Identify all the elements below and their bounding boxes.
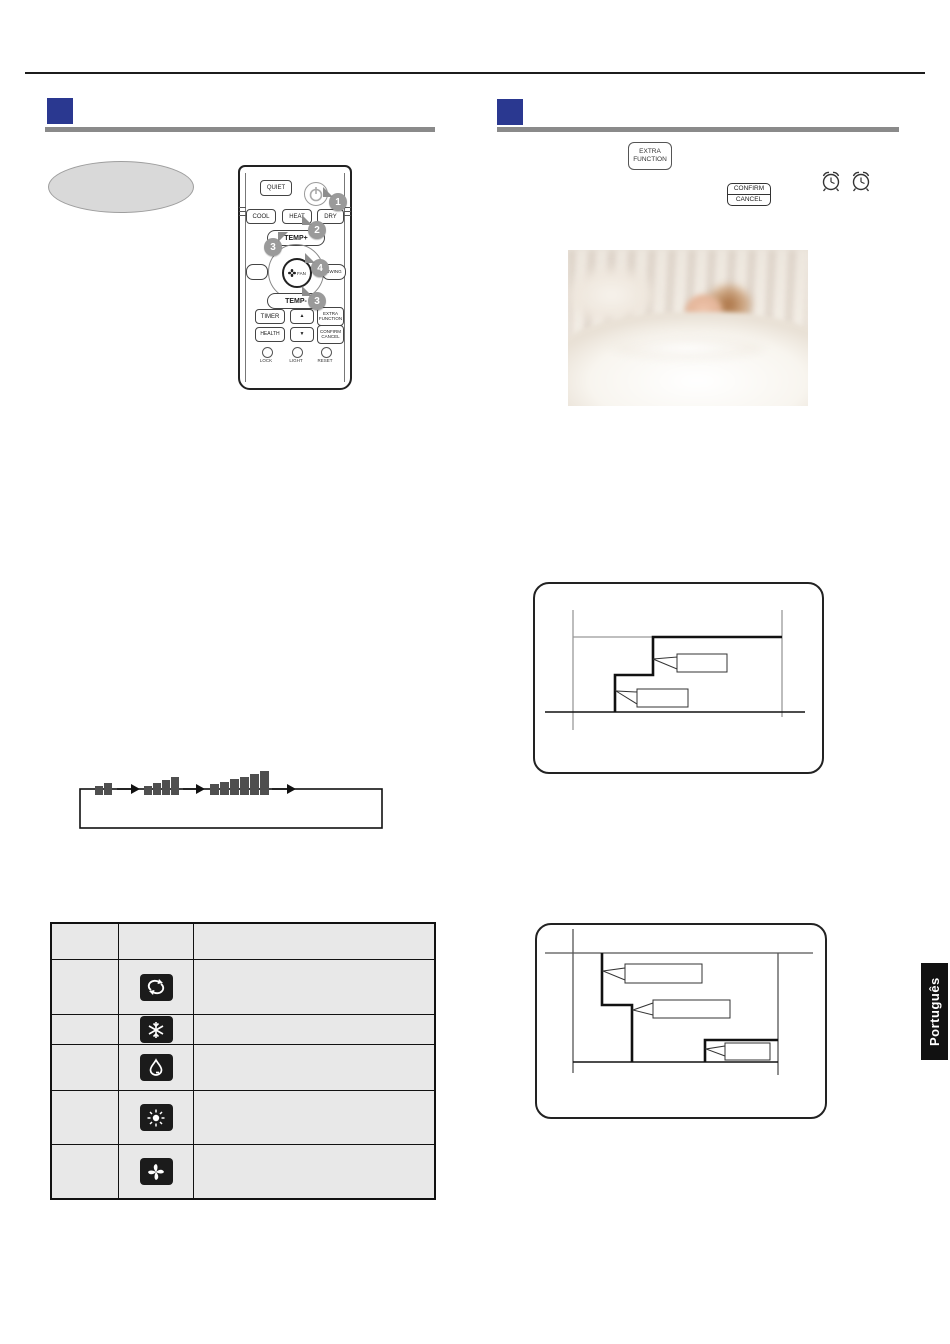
mode-desc-cell xyxy=(194,1015,434,1044)
mode-desc-cell xyxy=(194,1045,434,1090)
step-badge-3a: 3 xyxy=(264,238,282,256)
alarm-clock-icon xyxy=(820,169,842,193)
fan-icon xyxy=(140,1158,173,1185)
water-drop-icon xyxy=(140,1054,173,1081)
reset-label: RESET xyxy=(313,359,337,364)
sleeping-person-photo xyxy=(568,250,808,406)
mode-name-cell xyxy=(52,960,119,1014)
extra-function-button: EXTRA FUNCTION xyxy=(317,307,344,326)
confirm-cancel-inline-button: CONFIRM CANCEL xyxy=(727,183,771,206)
mode-name-cell xyxy=(52,1145,119,1198)
blank-oval-callout xyxy=(48,161,194,213)
reset-button xyxy=(321,347,332,358)
mode-name-cell xyxy=(52,1045,119,1090)
light-label: LIGHT xyxy=(284,359,308,364)
mode-icon-cell xyxy=(119,1145,194,1198)
cool-button: COOL xyxy=(246,209,276,224)
light-button xyxy=(292,347,303,358)
mode-icon-cell xyxy=(119,1045,194,1090)
step-badge-4: 4 xyxy=(311,259,329,277)
language-tab-portugues: Português xyxy=(921,963,948,1060)
step-badge-2: 2 xyxy=(308,221,326,239)
mode-desc-cell xyxy=(194,1145,434,1198)
header-cell xyxy=(194,924,434,959)
remote-ridges-right xyxy=(344,207,351,218)
section-rule-right xyxy=(497,127,899,132)
callout-box xyxy=(616,689,688,707)
callout-box xyxy=(706,1043,770,1060)
auto-icon xyxy=(140,974,173,1001)
cancel-inline-line: CANCEL xyxy=(728,195,770,205)
quiet-button: QUIET xyxy=(260,180,292,196)
extra-inline-line1: EXTRA xyxy=(639,148,661,156)
extra-function-line2: FUNCTION xyxy=(319,317,342,322)
section-marker-left xyxy=(47,98,73,124)
up-arrow-button: ▲ xyxy=(290,309,314,324)
extra-inline-line2: FUNCTION xyxy=(633,156,667,164)
mode-icon-cell xyxy=(119,1091,194,1144)
fan-speed-cycle-diagram xyxy=(60,760,400,835)
mode-table xyxy=(50,922,436,1200)
sleep-curve-heat-graph xyxy=(537,925,821,1113)
page-top-rule xyxy=(25,72,925,74)
fan-speed-medium-icon xyxy=(144,777,179,795)
table-row xyxy=(52,960,434,1015)
mode-desc-cell xyxy=(194,960,434,1014)
header-cell xyxy=(52,924,119,959)
table-row xyxy=(52,1045,434,1091)
sleep-curve-cool-graph xyxy=(535,584,818,768)
mode-icon-cell xyxy=(119,960,194,1014)
table-header-row xyxy=(52,924,434,960)
remote-ridges-left xyxy=(239,207,246,218)
step-badge-3b: 3 xyxy=(308,292,326,310)
section-marker-right xyxy=(497,99,523,125)
sleep-curve-diagram-heat xyxy=(535,923,827,1119)
fan-glyph-icon xyxy=(288,269,296,277)
mode-name-cell xyxy=(52,1015,119,1044)
confirm-inline-line: CONFIRM xyxy=(728,184,770,195)
cycle-arrow-icon xyxy=(183,784,205,794)
mode-name-cell xyxy=(52,1091,119,1144)
table-row xyxy=(52,1015,434,1045)
fan-speed-high-icon xyxy=(210,771,269,795)
snowflake-icon xyxy=(140,1016,173,1043)
manual-page: QUIET COOL HEAT DRY TEMP+ SWING FAN TEMP… xyxy=(0,0,950,1344)
cycle-arrow-icon xyxy=(117,784,140,794)
timer-button: TIMER xyxy=(255,309,285,324)
sleep-curve-diagram-cool xyxy=(533,582,824,774)
step-badge-1: 1 xyxy=(329,193,347,211)
remote-left-edge-line xyxy=(245,173,246,382)
down-arrow-button: ▼ xyxy=(290,327,314,342)
cancel-line: CANCEL xyxy=(321,335,339,340)
lock-button xyxy=(262,347,273,358)
header-cell xyxy=(119,924,194,959)
alarm-clock-icon xyxy=(850,169,872,193)
left-wing-button xyxy=(246,264,268,280)
table-row xyxy=(52,1145,434,1198)
callout-box xyxy=(603,964,702,983)
extra-function-inline-button: EXTRA FUNCTION xyxy=(628,142,672,170)
confirm-cancel-button: CONFIRM CANCEL xyxy=(317,325,344,344)
lock-label: LOCK xyxy=(254,359,278,364)
mode-icon-cell xyxy=(119,1015,194,1044)
callout-box xyxy=(653,654,727,672)
section-rule-left xyxy=(45,127,435,132)
sun-icon xyxy=(140,1104,173,1131)
fan-button-label: FAN xyxy=(297,271,306,276)
callout-box xyxy=(633,1000,730,1018)
cycle-arrow-icon xyxy=(272,784,296,794)
table-row xyxy=(52,1091,434,1145)
health-button: HEALTH xyxy=(255,327,285,342)
mode-desc-cell xyxy=(194,1091,434,1144)
